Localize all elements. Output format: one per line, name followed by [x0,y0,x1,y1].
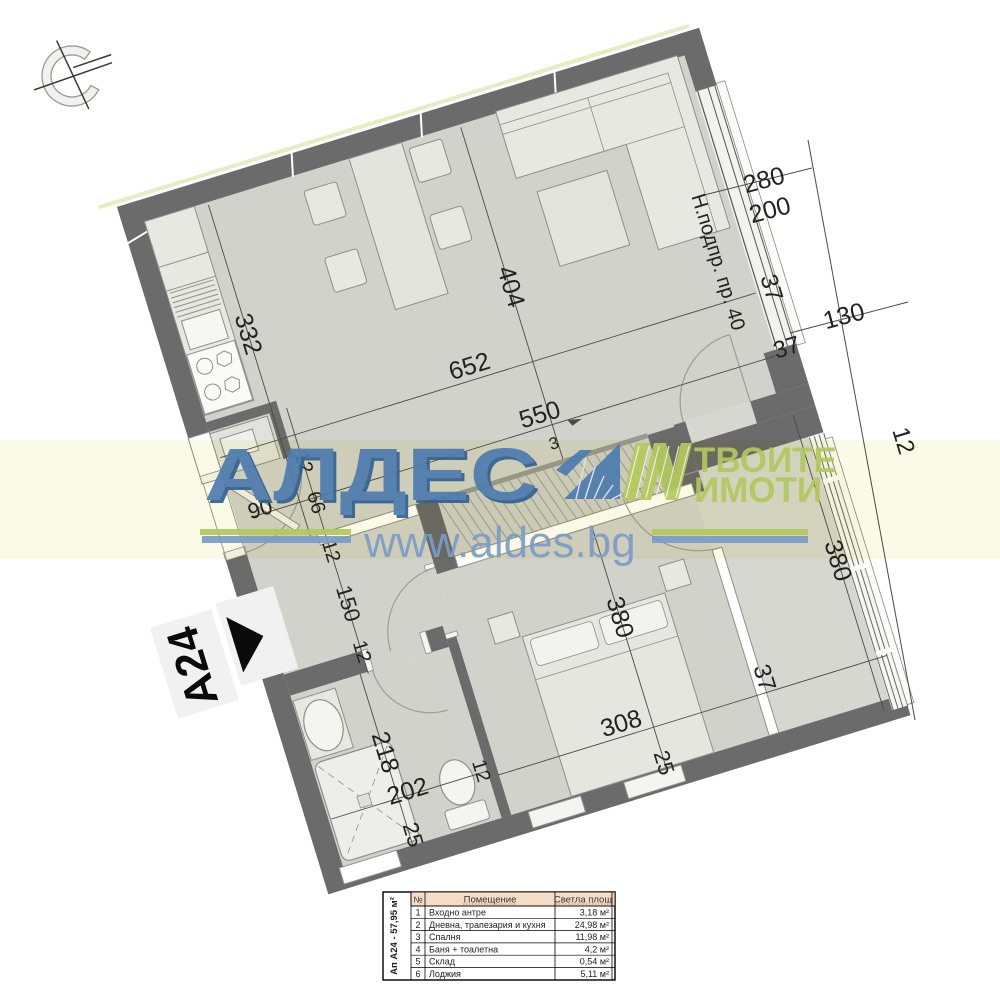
svg-text:5: 5 [415,957,420,967]
svg-text:4,2 м²: 4,2 м² [585,944,609,954]
svg-text:4: 4 [415,944,420,954]
svg-text:Дневна, трапезария и кухня: Дневна, трапезария и кухня [429,920,546,930]
svg-text:3: 3 [415,932,420,942]
svg-text:24,98 м²: 24,98 м² [575,920,609,930]
svg-text:№: № [413,895,422,905]
svg-text:Светла площ: Светла площ [554,895,612,906]
svg-text:Баня + тоалетна: Баня + тоалетна [429,944,498,954]
svg-text:Спалня: Спалня [429,932,461,942]
svg-text:Лоджия: Лоджия [429,969,461,979]
svg-text:Ап А24 - 57,95 м²: Ап А24 - 57,95 м² [389,897,400,975]
svg-text:5,11 м²: 5,11 м² [580,969,609,979]
svg-text:0,54 м²: 0,54 м² [580,957,609,967]
svg-text:1: 1 [415,908,420,918]
svg-text:Входно антре: Входно антре [429,908,486,918]
svg-text:www.aldes.bg: www.aldes.bg [363,518,635,567]
svg-text:АЛДЕС: АЛДЕС [204,433,538,516]
svg-text:6: 6 [415,969,420,979]
svg-text:ИМОТИ: ИМОТИ [694,471,822,510]
svg-text:11,98 м²: 11,98 м² [575,932,609,942]
svg-text:Склад: Склад [429,957,456,967]
svg-text:2: 2 [415,920,420,930]
svg-text:3,18 м²: 3,18 м² [580,908,609,918]
